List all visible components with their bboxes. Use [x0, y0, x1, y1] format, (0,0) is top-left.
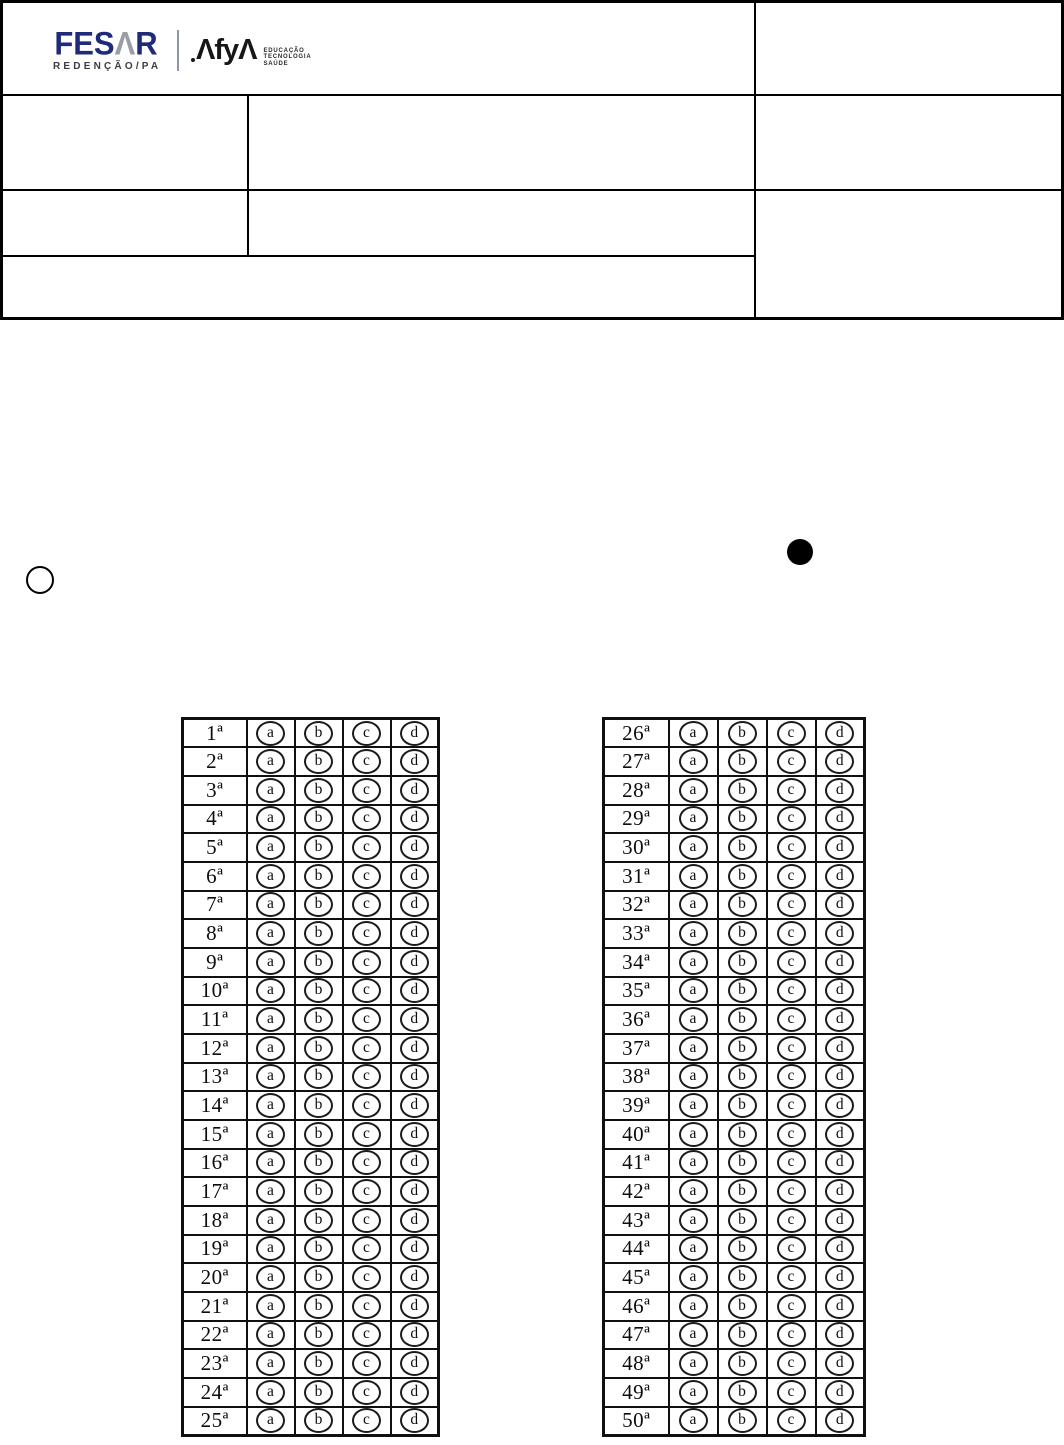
option-cell-d: d — [391, 1005, 439, 1034]
answer-bubble-c[interactable]: c — [352, 749, 381, 774]
answer-bubble-d[interactable]: d — [400, 921, 429, 946]
answer-row: 3ªabcd — [183, 776, 439, 805]
answer-bubble-d[interactable]: d — [825, 749, 854, 774]
answer-bubble-a[interactable]: a — [679, 1179, 708, 1204]
answer-bubble-a[interactable]: a — [679, 1322, 708, 1347]
answer-bubble-c[interactable]: c — [352, 1208, 381, 1233]
option-cell-b: b — [718, 919, 767, 948]
option-cell-b: b — [718, 1034, 767, 1063]
answer-bubble-c[interactable]: c — [777, 1150, 806, 1175]
answer-row: 41ªabcd — [604, 1149, 865, 1178]
option-cell-c: c — [767, 891, 816, 920]
answer-bubble-a[interactable]: a — [256, 1093, 285, 1118]
answer-bubble-c[interactable]: c — [352, 978, 381, 1003]
afya-logo: ΛfyΛ EDUCAÇÃO TECNOLOGIA SAÚDE — [196, 36, 311, 67]
option-cell-c: c — [767, 1149, 816, 1178]
answer-bubble-c[interactable]: c — [777, 721, 806, 746]
answer-bubble-d[interactable]: d — [825, 950, 854, 975]
option-cell-c: c — [767, 1292, 816, 1321]
header-cell-row2-left — [2, 95, 248, 190]
answer-bubble-a[interactable]: a — [256, 1179, 285, 1204]
answer-bubble-a[interactable]: a — [256, 1236, 285, 1261]
answer-bubble-a[interactable]: a — [256, 806, 285, 831]
answer-bubble-d[interactable]: d — [825, 1322, 854, 1347]
answer-bubble-d[interactable]: d — [825, 1236, 854, 1261]
answer-bubble-c[interactable]: c — [352, 778, 381, 803]
answer-bubble-b[interactable]: b — [304, 1036, 333, 1061]
option-cell-b: b — [718, 1263, 767, 1292]
question-number: 20ª — [183, 1263, 247, 1292]
answer-bubble-c[interactable]: c — [352, 1007, 381, 1032]
answer-bubble-c[interactable]: c — [777, 835, 806, 860]
answer-bubble-b[interactable]: b — [728, 864, 757, 889]
answer-bubble-d[interactable]: d — [825, 835, 854, 860]
option-cell-b: b — [718, 1149, 767, 1178]
option-cell-a: a — [669, 948, 718, 977]
question-number: 50ª — [604, 1407, 669, 1436]
answer-bubble-c[interactable]: c — [352, 950, 381, 975]
answer-bubble-c[interactable]: c — [777, 950, 806, 975]
answer-bubble-c[interactable]: c — [777, 1236, 806, 1261]
answer-bubble-b[interactable]: b — [304, 892, 333, 917]
answer-bubble-c[interactable]: c — [777, 1007, 806, 1032]
answer-bubble-b[interactable]: b — [304, 749, 333, 774]
option-cell-b: b — [718, 1005, 767, 1034]
option-cell-a: a — [247, 1091, 295, 1120]
answer-grid-questions-1-25: 1ªabcd2ªabcd3ªabcd4ªabcd5ªabcd6ªabcd7ªab… — [181, 717, 440, 1437]
answer-bubble-b[interactable]: b — [728, 721, 757, 746]
answer-bubble-b[interactable]: b — [728, 892, 757, 917]
answer-bubble-a[interactable]: a — [256, 1265, 285, 1290]
option-cell-b: b — [295, 1378, 343, 1407]
answer-bubble-a[interactable]: a — [256, 1408, 285, 1433]
answer-bubble-a[interactable]: a — [679, 1064, 708, 1089]
option-cell-c: c — [767, 1321, 816, 1350]
answer-bubble-d[interactable]: d — [400, 1265, 429, 1290]
question-number: 32ª — [604, 891, 669, 920]
answer-bubble-b[interactable]: b — [304, 978, 333, 1003]
answer-bubble-b[interactable]: b — [728, 1036, 757, 1061]
question-number: 47ª — [604, 1321, 669, 1350]
answer-bubble-d[interactable]: d — [400, 1322, 429, 1347]
answer-bubble-c[interactable]: c — [777, 892, 806, 917]
answer-bubble-c[interactable]: c — [777, 1322, 806, 1347]
answer-bubble-b[interactable]: b — [304, 1064, 333, 1089]
answer-bubble-b[interactable]: b — [728, 1322, 757, 1347]
answer-bubble-c[interactable]: c — [777, 921, 806, 946]
answer-bubble-b[interactable]: b — [304, 835, 333, 860]
option-cell-a: a — [669, 1177, 718, 1206]
answer-bubble-d[interactable]: d — [825, 1265, 854, 1290]
answer-bubble-d[interactable]: d — [825, 978, 854, 1003]
option-cell-c: c — [767, 1206, 816, 1235]
option-cell-d: d — [391, 1235, 439, 1264]
answer-bubble-a[interactable]: a — [256, 1294, 285, 1319]
answer-bubble-c[interactable]: c — [352, 921, 381, 946]
answer-bubble-c[interactable]: c — [352, 1294, 381, 1319]
answer-bubble-b[interactable]: b — [304, 1150, 333, 1175]
answer-bubble-d[interactable]: d — [400, 721, 429, 746]
option-cell-d: d — [816, 747, 865, 776]
answer-bubble-d[interactable]: d — [825, 1036, 854, 1061]
answer-bubble-b[interactable]: b — [304, 778, 333, 803]
header-cell-row34-right — [755, 190, 1063, 319]
answer-bubble-c[interactable]: c — [777, 1122, 806, 1147]
answer-bubble-c[interactable]: c — [352, 721, 381, 746]
answer-bubble-c[interactable]: c — [352, 1265, 381, 1290]
answer-bubble-b[interactable]: b — [304, 921, 333, 946]
answer-bubble-b[interactable]: b — [304, 1122, 333, 1147]
option-cell-c: c — [343, 891, 391, 920]
answer-bubble-c[interactable]: c — [352, 1322, 381, 1347]
answer-bubble-b[interactable]: b — [304, 1208, 333, 1233]
question-number: 24ª — [183, 1378, 247, 1407]
afya-tagline: EDUCAÇÃO TECNOLOGIA SAÚDE — [263, 48, 311, 67]
option-cell-d: d — [816, 1349, 865, 1378]
option-cell-a: a — [669, 1005, 718, 1034]
answer-bubble-c[interactable]: c — [777, 1208, 806, 1233]
answer-bubble-c[interactable]: c — [352, 1236, 381, 1261]
answer-bubble-d[interactable]: d — [825, 1408, 854, 1433]
answer-bubble-c[interactable]: c — [777, 1380, 806, 1405]
filled-mark-example-icon — [787, 539, 813, 565]
answer-row: 19ªabcd — [183, 1235, 439, 1264]
option-cell-b: b — [718, 833, 767, 862]
answer-row: 10ªabcd — [183, 977, 439, 1006]
answer-bubble-d[interactable]: d — [825, 1007, 854, 1032]
option-cell-b: b — [295, 977, 343, 1006]
answer-bubble-c[interactable]: c — [777, 778, 806, 803]
answer-bubble-d[interactable]: d — [825, 1294, 854, 1319]
answer-bubble-b[interactable]: b — [304, 1093, 333, 1118]
answer-bubble-a[interactable]: a — [256, 1150, 285, 1175]
answer-bubble-a[interactable]: a — [256, 749, 285, 774]
answer-bubble-c[interactable]: c — [352, 1408, 381, 1433]
answer-bubble-c[interactable]: c — [777, 1351, 806, 1376]
answer-bubble-d[interactable]: d — [825, 1150, 854, 1175]
answer-bubble-d[interactable]: d — [825, 1351, 854, 1376]
answer-bubble-c[interactable]: c — [352, 1351, 381, 1376]
answer-bubble-c[interactable]: c — [777, 806, 806, 831]
answer-bubble-a[interactable]: a — [679, 1150, 708, 1175]
answer-bubble-d[interactable]: d — [825, 892, 854, 917]
header-cell-row2-right — [755, 95, 1063, 190]
answer-bubble-a[interactable]: a — [679, 1236, 708, 1261]
answer-bubble-a[interactable]: a — [256, 1380, 285, 1405]
answer-bubble-c[interactable]: c — [352, 1150, 381, 1175]
answer-bubble-a[interactable]: a — [256, 1007, 285, 1032]
option-cell-d: d — [391, 1091, 439, 1120]
answer-bubble-b[interactable]: b — [728, 1294, 757, 1319]
answer-row: 45ªabcd — [604, 1263, 865, 1292]
option-cell-d: d — [816, 1235, 865, 1264]
answer-bubble-c[interactable]: c — [352, 1179, 381, 1204]
option-cell-b: b — [295, 1407, 343, 1436]
option-cell-c: c — [343, 948, 391, 977]
question-number: 48ª — [604, 1349, 669, 1378]
answer-bubble-a[interactable]: a — [256, 892, 285, 917]
answer-bubble-b[interactable]: b — [728, 1380, 757, 1405]
option-cell-a: a — [669, 1263, 718, 1292]
option-cell-c: c — [767, 919, 816, 948]
answer-row: 32ªabcd — [604, 891, 865, 920]
question-number: 16ª — [183, 1149, 247, 1178]
question-number: 17ª — [183, 1177, 247, 1206]
answer-bubble-a[interactable]: a — [679, 978, 708, 1003]
option-cell-b: b — [295, 1149, 343, 1178]
answer-bubble-d[interactable]: d — [400, 1236, 429, 1261]
answer-bubble-a[interactable]: a — [679, 921, 708, 946]
answer-bubble-b[interactable]: b — [728, 978, 757, 1003]
answer-row: 1ªabcd — [183, 719, 439, 748]
option-cell-d: d — [391, 1349, 439, 1378]
answer-bubble-b[interactable]: b — [304, 1294, 333, 1319]
answer-bubble-d[interactable]: d — [400, 1294, 429, 1319]
answer-bubble-a[interactable]: a — [679, 1122, 708, 1147]
option-cell-c: c — [343, 1206, 391, 1235]
answer-bubble-c[interactable]: c — [352, 806, 381, 831]
answer-bubble-a[interactable]: a — [679, 892, 708, 917]
question-number: 43ª — [604, 1206, 669, 1235]
answer-bubble-a[interactable]: a — [679, 1380, 708, 1405]
answer-bubble-c[interactable]: c — [777, 864, 806, 889]
answer-bubble-d[interactable]: d — [400, 835, 429, 860]
option-cell-d: d — [816, 1321, 865, 1350]
answer-bubble-b[interactable]: b — [304, 1351, 333, 1376]
answer-bubble-c[interactable]: c — [777, 978, 806, 1003]
answer-row: 23ªabcd — [183, 1349, 439, 1378]
answer-bubble-a[interactable]: a — [679, 1294, 708, 1319]
answer-bubble-b[interactable]: b — [728, 1093, 757, 1118]
answer-row: 31ªabcd — [604, 862, 865, 891]
answer-bubble-a[interactable]: a — [256, 1036, 285, 1061]
answer-bubble-b[interactable]: b — [304, 721, 333, 746]
answer-bubble-a[interactable]: a — [679, 1036, 708, 1061]
answer-bubble-b[interactable]: b — [304, 950, 333, 975]
answer-bubble-c[interactable]: c — [352, 1122, 381, 1147]
option-cell-b: b — [718, 1292, 767, 1321]
option-cell-a: a — [669, 1206, 718, 1235]
answer-bubble-d[interactable]: d — [400, 1036, 429, 1061]
answer-bubble-b[interactable]: b — [728, 1179, 757, 1204]
answer-bubble-c[interactable]: c — [777, 1036, 806, 1061]
answer-bubble-a[interactable]: a — [679, 778, 708, 803]
answer-bubble-c[interactable]: c — [777, 1294, 806, 1319]
answer-bubble-d[interactable]: d — [400, 1064, 429, 1089]
answer-bubble-b[interactable]: b — [304, 1007, 333, 1032]
answer-bubble-d[interactable]: d — [825, 1122, 854, 1147]
answer-bubble-b[interactable]: b — [728, 1122, 757, 1147]
answer-bubble-b[interactable]: b — [728, 1265, 757, 1290]
option-cell-d: d — [816, 948, 865, 977]
answer-bubble-d[interactable]: d — [400, 778, 429, 803]
answer-bubble-a[interactable]: a — [679, 864, 708, 889]
answer-bubble-b[interactable]: b — [728, 778, 757, 803]
answer-bubble-b[interactable]: b — [728, 806, 757, 831]
answer-bubble-b[interactable]: b — [728, 1351, 757, 1376]
answer-bubble-a[interactable]: a — [679, 721, 708, 746]
option-cell-c: c — [343, 977, 391, 1006]
answer-bubble-a[interactable]: a — [256, 721, 285, 746]
answer-bubble-d[interactable]: d — [825, 721, 854, 746]
answer-bubble-d[interactable]: d — [825, 1208, 854, 1233]
question-number: 49ª — [604, 1378, 669, 1407]
option-cell-a: a — [247, 1349, 295, 1378]
answer-bubble-a[interactable]: a — [256, 778, 285, 803]
answer-bubble-c[interactable]: c — [352, 864, 381, 889]
option-cell-d: d — [816, 891, 865, 920]
answer-bubble-a[interactable]: a — [679, 749, 708, 774]
answer-bubble-a[interactable]: a — [256, 1351, 285, 1376]
answer-bubble-a[interactable]: a — [679, 1093, 708, 1118]
answer-bubble-a[interactable]: a — [256, 864, 285, 889]
answer-bubble-a[interactable]: a — [256, 978, 285, 1003]
option-cell-a: a — [669, 719, 718, 748]
answer-bubble-c[interactable]: c — [352, 1064, 381, 1089]
answer-bubble-a[interactable]: a — [256, 950, 285, 975]
option-cell-a: a — [669, 1091, 718, 1120]
question-number: 21ª — [183, 1292, 247, 1321]
option-cell-c: c — [767, 719, 816, 748]
option-cell-d: d — [391, 948, 439, 977]
option-cell-b: b — [295, 1177, 343, 1206]
answer-bubble-d[interactable]: d — [400, 950, 429, 975]
answer-bubble-d[interactable]: d — [825, 1093, 854, 1118]
answer-bubble-a[interactable]: a — [256, 1122, 285, 1147]
answer-bubble-d[interactable]: d — [400, 749, 429, 774]
answer-bubble-d[interactable]: d — [825, 1179, 854, 1204]
answer-bubble-d[interactable]: d — [825, 1380, 854, 1405]
answer-bubble-d[interactable]: d — [400, 1150, 429, 1175]
answer-bubble-d[interactable]: d — [825, 864, 854, 889]
option-cell-d: d — [816, 1005, 865, 1034]
answer-bubble-a[interactable]: a — [679, 1351, 708, 1376]
answer-bubble-b[interactable]: b — [728, 749, 757, 774]
answer-bubble-d[interactable]: d — [825, 1064, 854, 1089]
answer-row: 9ªabcd — [183, 948, 439, 977]
answer-bubble-b[interactable]: b — [728, 921, 757, 946]
answer-bubble-b[interactable]: b — [728, 1064, 757, 1089]
option-cell-d: d — [391, 833, 439, 862]
answer-bubble-d[interactable]: d — [400, 1093, 429, 1118]
answer-bubble-a[interactable]: a — [679, 1007, 708, 1032]
answer-bubble-d[interactable]: d — [400, 1122, 429, 1147]
answer-bubble-b[interactable]: b — [728, 950, 757, 975]
fesar-subtitle: REDENÇÃO/PA — [53, 62, 159, 72]
answer-bubble-d[interactable]: d — [400, 1179, 429, 1204]
option-cell-b: b — [295, 891, 343, 920]
answer-bubble-d[interactable]: d — [400, 1351, 429, 1376]
answer-bubble-d[interactable]: d — [400, 978, 429, 1003]
option-cell-a: a — [247, 747, 295, 776]
question-number: 11ª — [183, 1005, 247, 1034]
answer-bubble-b[interactable]: b — [304, 1408, 333, 1433]
question-number: 4ª — [183, 805, 247, 834]
option-cell-a: a — [247, 833, 295, 862]
option-cell-a: a — [247, 1263, 295, 1292]
answer-bubble-c[interactable]: c — [777, 1408, 806, 1433]
answer-bubble-b[interactable]: b — [304, 806, 333, 831]
answer-bubble-b[interactable]: b — [304, 1265, 333, 1290]
answer-row: 8ªabcd — [183, 919, 439, 948]
answer-bubble-d[interactable]: d — [400, 806, 429, 831]
answer-bubble-b[interactable]: b — [728, 1208, 757, 1233]
option-cell-d: d — [391, 1177, 439, 1206]
option-cell-b: b — [718, 1177, 767, 1206]
afya-dot-icon — [191, 58, 195, 62]
answer-bubble-c[interactable]: c — [777, 749, 806, 774]
answer-bubble-d[interactable]: d — [400, 1408, 429, 1433]
option-cell-b: b — [295, 948, 343, 977]
question-number: 29ª — [604, 805, 669, 834]
answer-bubble-a[interactable]: a — [256, 1322, 285, 1347]
answer-bubble-c[interactable]: c — [777, 1093, 806, 1118]
answer-row: 2ªabcd — [183, 747, 439, 776]
answer-bubble-d[interactable]: d — [825, 806, 854, 831]
option-cell-c: c — [343, 1321, 391, 1350]
answer-bubble-b[interactable]: b — [304, 1179, 333, 1204]
option-cell-c: c — [343, 1235, 391, 1264]
option-cell-c: c — [343, 919, 391, 948]
answer-bubble-b[interactable]: b — [728, 835, 757, 860]
answer-bubble-c[interactable]: c — [777, 1064, 806, 1089]
answer-bubble-a[interactable]: a — [679, 1408, 708, 1433]
answer-bubble-b[interactable]: b — [304, 1322, 333, 1347]
answer-bubble-b[interactable]: b — [728, 1236, 757, 1261]
option-cell-d: d — [391, 1378, 439, 1407]
answer-bubble-c[interactable]: c — [352, 1380, 381, 1405]
answer-bubble-a[interactable]: a — [679, 835, 708, 860]
answer-bubble-d[interactable]: d — [400, 1208, 429, 1233]
option-cell-c: c — [767, 1177, 816, 1206]
answer-bubble-c[interactable]: c — [352, 835, 381, 860]
answer-bubble-d[interactable]: d — [400, 1007, 429, 1032]
answer-bubble-b[interactable]: b — [304, 1380, 333, 1405]
answer-bubble-a[interactable]: a — [679, 1208, 708, 1233]
answer-bubble-d[interactable]: d — [825, 778, 854, 803]
answer-bubble-a[interactable]: a — [256, 1208, 285, 1233]
answer-bubble-d[interactable]: d — [825, 921, 854, 946]
answer-bubble-b[interactable]: b — [304, 1236, 333, 1261]
answer-bubble-a[interactable]: a — [256, 835, 285, 860]
answer-bubble-a[interactable]: a — [679, 806, 708, 831]
answer-bubble-b[interactable]: b — [304, 864, 333, 889]
answer-bubble-b[interactable]: b — [728, 1007, 757, 1032]
answer-bubble-d[interactable]: d — [400, 1380, 429, 1405]
question-number: 15ª — [183, 1120, 247, 1149]
answer-bubble-a[interactable]: a — [256, 921, 285, 946]
answer-bubble-c[interactable]: c — [352, 1093, 381, 1118]
answer-bubble-a[interactable]: a — [679, 950, 708, 975]
option-cell-d: d — [391, 776, 439, 805]
answer-bubble-b[interactable]: b — [728, 1408, 757, 1433]
answer-bubble-c[interactable]: c — [352, 1036, 381, 1061]
option-cell-c: c — [767, 1005, 816, 1034]
answer-bubble-c[interactable]: c — [777, 1265, 806, 1290]
answer-bubble-d[interactable]: d — [400, 892, 429, 917]
answer-row: 12ªabcd — [183, 1034, 439, 1063]
answer-bubble-d[interactable]: d — [400, 864, 429, 889]
answer-bubble-c[interactable]: c — [777, 1179, 806, 1204]
answer-bubble-c[interactable]: c — [352, 892, 381, 917]
option-cell-b: b — [718, 719, 767, 748]
answer-bubble-a[interactable]: a — [256, 1064, 285, 1089]
answer-bubble-a[interactable]: a — [679, 1265, 708, 1290]
answer-bubble-b[interactable]: b — [728, 1150, 757, 1175]
question-number: 13ª — [183, 1063, 247, 1092]
answer-row: 36ªabcd — [604, 1005, 865, 1034]
option-cell-a: a — [669, 1292, 718, 1321]
